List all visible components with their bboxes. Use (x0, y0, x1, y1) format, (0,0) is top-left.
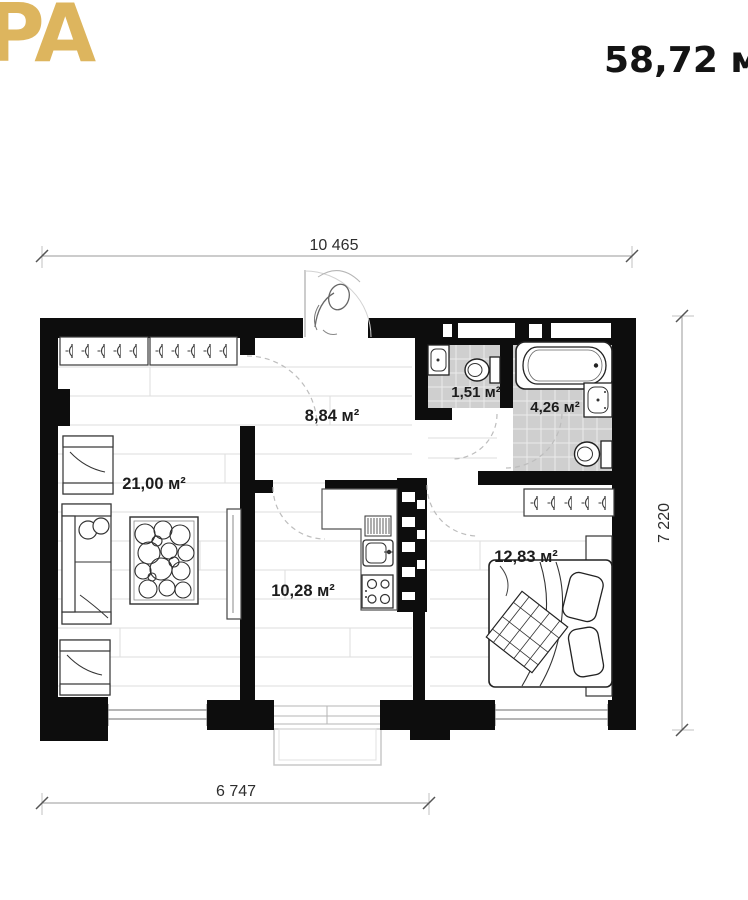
room-area-kitchen: 10,28 м² (271, 582, 335, 600)
dish-rack-icon (365, 516, 391, 536)
bedroom-door-arc (427, 485, 478, 536)
armchair-bottom (60, 640, 110, 695)
room-area-bathroom: 4,26 м² (530, 399, 579, 416)
wc-toilet-icon (465, 357, 500, 383)
stove-icon (362, 575, 393, 608)
balcony (274, 729, 381, 765)
bath-toilet-icon (575, 441, 613, 468)
dimension-top-label: 10 465 (310, 237, 359, 254)
dimension-bottom-label: 6 747 (216, 783, 256, 800)
room-area-hallway: 8,84 м² (305, 407, 360, 425)
wardrobe-bedroom (524, 489, 614, 516)
bed (486, 560, 612, 687)
entrance-person-sketch (305, 270, 371, 337)
dimension-right: 7 220 (656, 310, 694, 736)
room-area-bedroom: 12,83 м² (494, 548, 558, 566)
window-bedroom (495, 701, 608, 729)
dimension-top: 10 465 (36, 237, 638, 268)
kitchen-door-arc (273, 487, 325, 539)
room-area-living: 21,00 м² (122, 475, 186, 493)
rug (130, 517, 198, 604)
room-area-wc: 1,51 м² (451, 384, 500, 401)
window-living (108, 701, 207, 729)
dimension-right-label: 7 220 (656, 503, 673, 543)
dimension-bottom: 6 747 (36, 783, 435, 815)
armchair-top (63, 436, 113, 494)
balcony-door (274, 706, 380, 724)
sofa (62, 504, 111, 624)
wc-washbasin-icon (428, 345, 449, 375)
bath-washbasin-icon (584, 383, 612, 417)
bathtub-icon (516, 342, 612, 389)
wc-door-arc (452, 414, 497, 459)
kitchen-sink-icon (363, 540, 393, 566)
tv-stand (227, 509, 241, 619)
floor-plan-page: PA 58,72 м (0, 0, 748, 900)
floor-plan-drawing: 10 465 7 220 6 747 21,00 м² 8,84 м² 1,51… (0, 0, 748, 900)
